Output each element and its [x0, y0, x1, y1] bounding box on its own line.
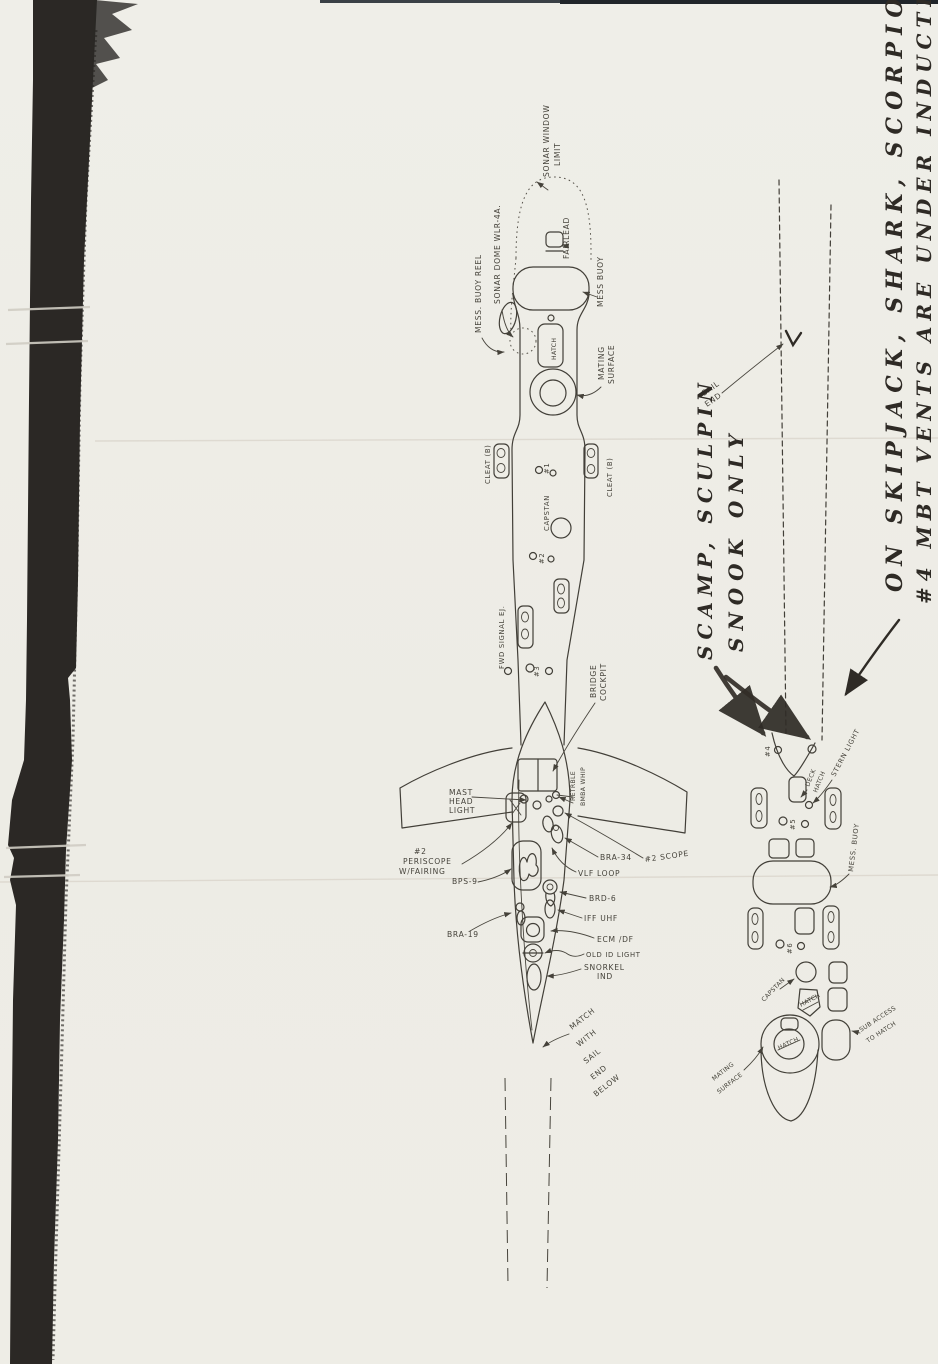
aft-capstan-circle [796, 962, 816, 982]
label-aft-hatch-main: HATCH [777, 1036, 800, 1052]
periscope-fairing [506, 793, 526, 822]
label-bridge-cockpit-2: COCKPIT [599, 663, 608, 701]
aft-deck-hatch [789, 777, 806, 802]
aft-square-hatch-1 [769, 839, 789, 858]
aft-escape-trunk [761, 1015, 819, 1121]
fairwater-plane-right [578, 748, 687, 833]
label-retractable-whip-2: BMBA WHIP [580, 767, 587, 806]
aft-track-left-lower [748, 908, 763, 949]
label-cleat-left: CLEAT (B) [484, 444, 492, 484]
bps9-radar-housing [512, 841, 541, 890]
label-vents-6: #6 [786, 943, 794, 954]
label-bridge-cockpit: BRIDGE [589, 665, 598, 698]
aft-track-right-upper [825, 788, 841, 829]
aft-track-left-upper [751, 788, 767, 828]
label-snorkel-2: IND [597, 972, 613, 981]
aft-square-hatch-4 [829, 962, 847, 983]
stern-hull-line-right [547, 1078, 551, 1288]
label-stern-light: STERN LIGHT [830, 727, 862, 777]
stern-hull-line-left [505, 1078, 508, 1285]
boat-note-arrow-right [726, 677, 807, 737]
label-aft-mess-buoy: MESS. BUOY [847, 823, 861, 873]
fairlead-fitting [546, 232, 563, 251]
label-retractable-whip: RETRBLE [570, 771, 577, 801]
label-bow-hatch: HATCH [551, 338, 558, 360]
bra34-shape [549, 824, 564, 844]
label-iff-uhf: IFF UHF [584, 914, 618, 923]
sail-and-planes [400, 702, 687, 1288]
handwritten-notes: ON SKIPJACK, SHARK, SCORPION #4 MBT VENT… [693, 0, 936, 660]
aft-square-hatch-3 [795, 908, 814, 934]
aft-mess-buoy-recess [753, 861, 831, 904]
aft-square-hatch-2 [796, 839, 814, 857]
bow-section [496, 177, 591, 745]
scope2-circle [553, 806, 563, 816]
forward-deck-fittings [494, 444, 598, 675]
note-class-line-2: #4 MBT VENTS ARE UNDER INDUCTION [912, 0, 936, 604]
label-bra19: BRA-19 [447, 930, 479, 939]
hull-outline-left [512, 295, 521, 745]
note-boats-line-2: SNOOK ONLY [724, 427, 748, 652]
label-periscope-3: W/FAIRING [399, 867, 446, 876]
label-mating-surface: MATING [597, 346, 606, 380]
label-scope2: #2 SCOPE [644, 849, 690, 864]
aft-hull-line-right [822, 205, 831, 740]
deck-track-right [554, 579, 569, 613]
sail-end-check-mark [786, 331, 801, 345]
bridge-cockpit-windows [518, 759, 557, 791]
label-vlf-loop: VLF LOOP [578, 869, 620, 878]
vlf-loop-shape [541, 815, 554, 833]
label-capstan: CAPSTAN [543, 495, 551, 531]
label-fwd-signal-ejector: FWD SIGNAL EJ. [498, 605, 506, 669]
aft-track-right-lower [823, 906, 839, 949]
aft-access-shape [822, 1020, 850, 1060]
scan-artifacts [0, 0, 938, 1364]
label-match-note-2: WITH [575, 1027, 599, 1048]
sonar-window-limit-outline [516, 177, 591, 262]
label-fairlead: FAIRLEAD [562, 217, 571, 259]
label-old-id-light: OLD ID LIGHT [586, 951, 641, 959]
label-mast-head-light-2: HEAD [449, 797, 473, 806]
label-vents-3: #3 [533, 666, 541, 677]
label-snorkel: SNORKEL [584, 963, 625, 972]
label-mast-head-light: MAST [449, 788, 473, 797]
label-periscope: #2 [414, 847, 427, 856]
fold-crease-upper [95, 438, 938, 441]
label-aft-capstan: CAPSTAN [760, 977, 786, 1004]
label-mating-surface-2: SURFACE [607, 345, 616, 384]
scanned-document-page: SONAR WINDOW LIMIT MESS. BUOY REEL SONAR… [0, 0, 938, 1364]
bra19-shape [516, 903, 525, 925]
photocopy-dark-band [8, 0, 97, 1364]
cleat-right [584, 444, 598, 478]
note-class-line-1: ON SKIPJACK, SHARK, SCORPION [882, 0, 908, 592]
label-bps9: BPS-9 [452, 877, 478, 886]
label-brd6: BRD-6 [589, 894, 616, 903]
label-sonar-window-limit: SONAR WINDOW [542, 104, 551, 177]
stern-light-circle [806, 802, 813, 809]
brd6-shape [543, 880, 557, 906]
label-ecm-df: ECM /DF [597, 935, 634, 944]
aft-detail-view [748, 180, 850, 1121]
label-bra34: BRA-34 [600, 853, 632, 862]
note-boats-line-1: SCAMP, SCULPIN [693, 377, 717, 660]
label-vents-4: #4 [764, 746, 772, 757]
label-sonar-dome: SONAR DOME WLR-4A. [493, 205, 502, 304]
photocopy-band-fuzz-top [92, 0, 138, 88]
label-vents-2: #2 [538, 553, 546, 564]
label-mess-buoy: MESS BUOY [596, 256, 605, 307]
deck-fitting-dot [548, 315, 554, 321]
note-arrow-to-deck [846, 620, 899, 694]
label-mess-buoy-reel: MESS. BUOY REEL [474, 254, 483, 333]
deck-track-left [518, 606, 533, 648]
snorkel-induction-shape [527, 964, 541, 990]
label-mast-head-light-3: LIGHT [449, 806, 475, 815]
label-cleat-right: CLEAT (B) [606, 457, 614, 497]
label-sonar-window-limit-2: LIMIT [553, 143, 562, 166]
sonar-dome-dotted [510, 328, 536, 354]
vent-circles-4 [775, 745, 817, 754]
label-match-note-3: SAIL [582, 1046, 603, 1065]
label-match-note-4: END [589, 1063, 609, 1081]
label-vents-1: #1 [543, 463, 551, 474]
submarine-deck-plan-sketch: SONAR WINDOW LIMIT MESS. BUOY REEL SONAR… [0, 0, 938, 1364]
label-periscope-2: PERISCOPE [403, 857, 452, 866]
cleat-left [494, 444, 509, 478]
mess-buoy-recess [513, 267, 589, 310]
iff-uhf-shape [545, 900, 555, 918]
sail-end-pointed-outline [772, 733, 815, 776]
capstan-circle [551, 518, 571, 538]
aft-square-hatch-5 [828, 988, 847, 1011]
bow-labels: SONAR WINDOW LIMIT MESS. BUOY REEL SONAR… [474, 104, 616, 384]
sail-labels: BRIDGE COCKPIT RETRBLE BMBA WHIP MAST HE… [399, 663, 690, 1098]
old-id-light-shape [523, 944, 543, 962]
label-vents-5: #5 [789, 819, 797, 830]
bow-mating-surface-ring [530, 369, 576, 415]
aft-hull-line-left [779, 180, 786, 733]
